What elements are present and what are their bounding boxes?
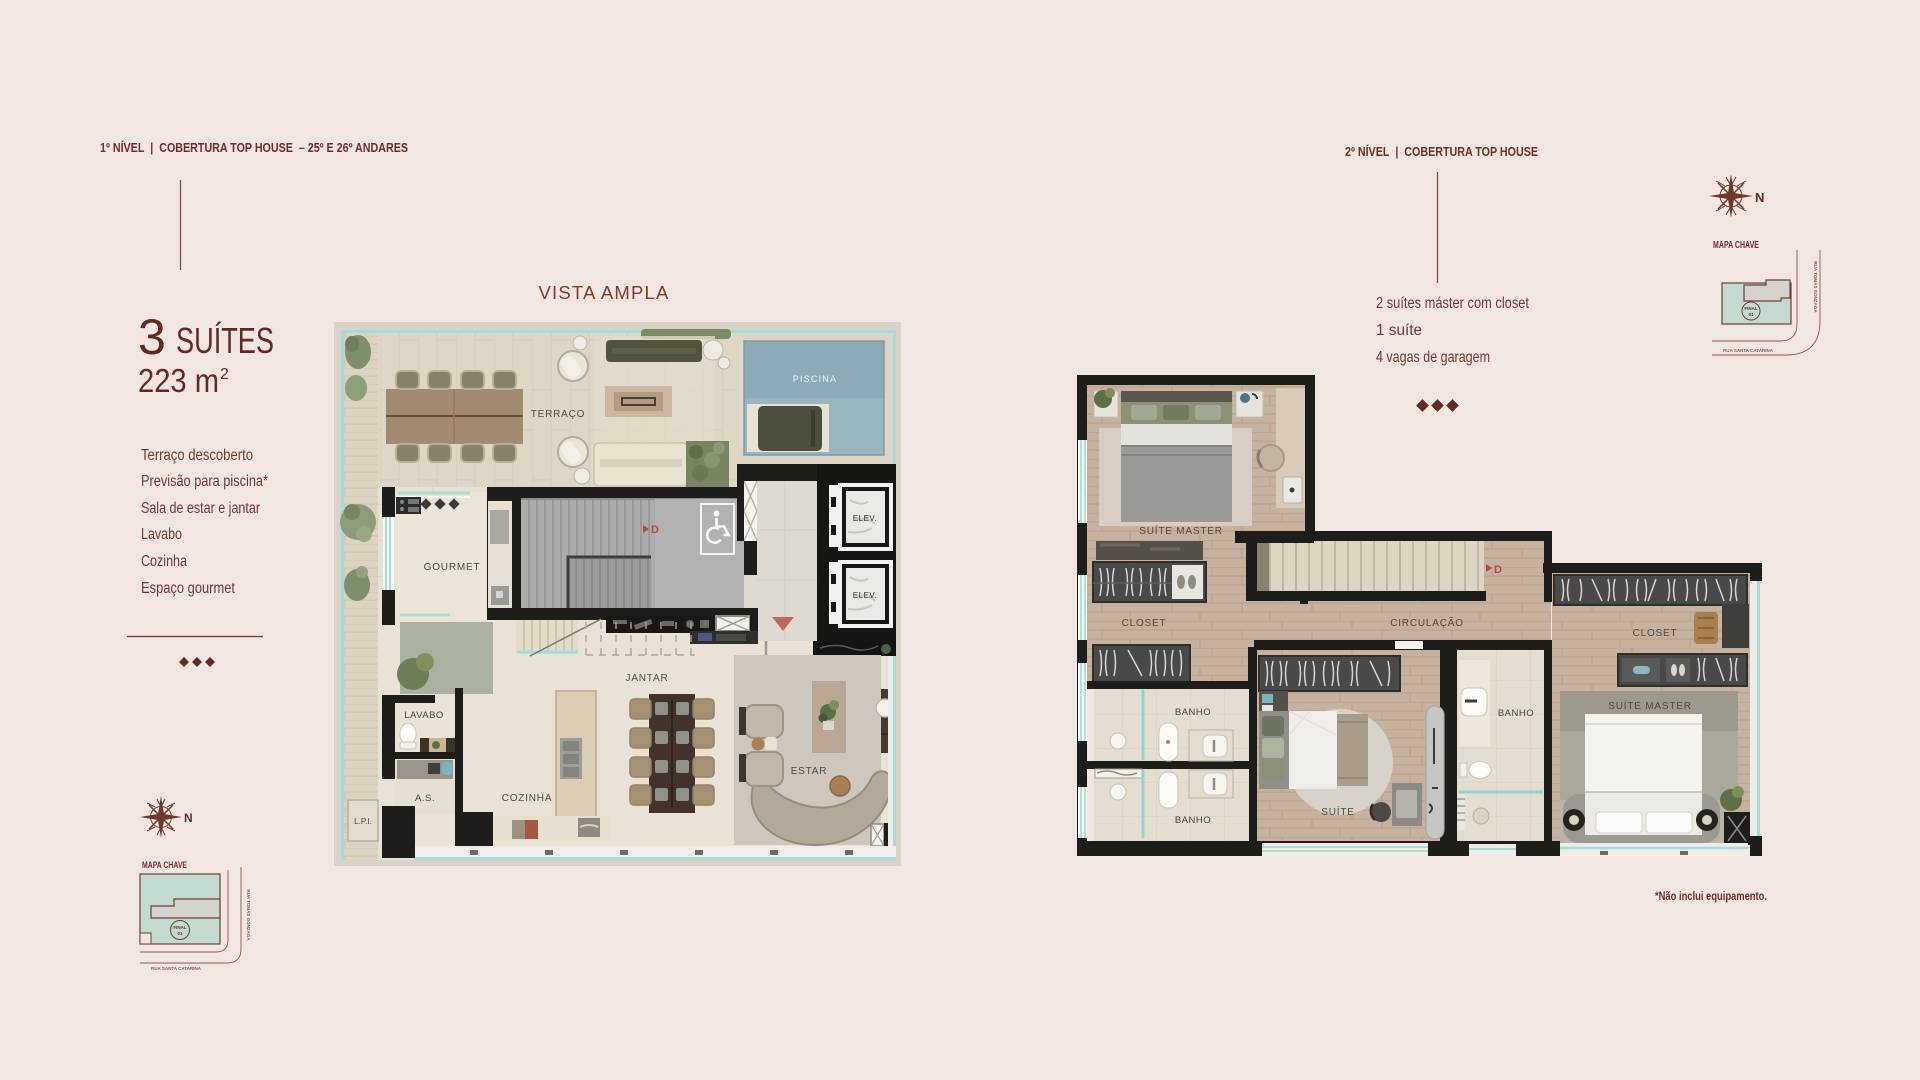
svg-text:SUÍTES: SUÍTES <box>176 320 274 361</box>
svg-text:ELEV.: ELEV. <box>853 514 877 523</box>
svg-text:1º NÍVEL | COBERTURA TOP HOU: 1º NÍVEL | COBERTURA TOP HOUSE – 25º E 2… <box>100 140 408 155</box>
svg-text:LAVABO: LAVABO <box>404 710 444 721</box>
svg-text:D: D <box>1494 564 1502 576</box>
svg-text:4 vagas de garagem: 4 vagas de garagem <box>1376 349 1490 366</box>
svg-text:2 suítes máster com closet: 2 suítes máster com closet <box>1376 295 1530 312</box>
svg-text:RUA TOMÁS GONZAGA: RUA TOMÁS GONZAGA <box>1813 261 1819 313</box>
svg-text:Espaço gourmet: Espaço gourmet <box>141 580 236 597</box>
svg-text:SUÍTE MASTER: SUÍTE MASTER <box>1139 524 1223 537</box>
svg-text:RUA TOMÁS GONZAGA: RUA TOMÁS GONZAGA <box>246 889 252 941</box>
svg-text:PISCINA: PISCINA <box>793 374 837 384</box>
svg-text:2º NÍVEL | COBERTURA TOP HOU: 2º NÍVEL | COBERTURA TOP HOUSE <box>1345 144 1538 159</box>
svg-text:BANHO: BANHO <box>1175 815 1211 826</box>
svg-text:RUA SANTA CATARINA: RUA SANTA CATARINA <box>1723 348 1774 353</box>
svg-text:CLOSET: CLOSET <box>1633 628 1678 639</box>
svg-text:1 suíte: 1 suíte <box>1376 322 1422 339</box>
svg-text:FINAL: FINAL <box>173 925 186 930</box>
svg-text:Previsão para piscina*: Previsão para piscina* <box>141 473 268 490</box>
svg-text:GOURMET: GOURMET <box>424 562 481 573</box>
svg-text:Lavabo: Lavabo <box>141 526 182 543</box>
svg-text:223 m: 223 m <box>138 362 219 399</box>
svg-text:BANHO: BANHO <box>1498 708 1534 719</box>
svg-text:MAPA CHAVE: MAPA CHAVE <box>142 860 187 871</box>
svg-text:N: N <box>184 811 193 825</box>
svg-text:Sala de estar e jantar: Sala de estar e jantar <box>141 500 260 517</box>
svg-text:L.P.I.: L.P.I. <box>354 817 372 826</box>
svg-text:FINAL: FINAL <box>1744 306 1757 311</box>
svg-text:01: 01 <box>177 931 183 936</box>
svg-text:D: D <box>651 524 659 536</box>
svg-text:VISTA AMPLA: VISTA AMPLA <box>538 282 669 303</box>
svg-text:ESTAR: ESTAR <box>791 766 828 777</box>
svg-text:JANTAR: JANTAR <box>626 673 669 684</box>
svg-text:RUA SANTA CATARINA: RUA SANTA CATARINA <box>151 966 202 971</box>
svg-text:SUÍTE MASTER: SUÍTE MASTER <box>1608 699 1692 712</box>
svg-text:BANHO: BANHO <box>1175 707 1211 718</box>
svg-text:Cozinha: Cozinha <box>141 553 187 570</box>
svg-text:CLOSET: CLOSET <box>1122 618 1167 629</box>
svg-text:3: 3 <box>138 309 166 365</box>
svg-text:01: 01 <box>1748 312 1754 317</box>
svg-text:CIRCULAÇÃO: CIRCULAÇÃO <box>1390 616 1464 629</box>
svg-text:SUÍTE: SUÍTE <box>1321 805 1354 818</box>
svg-text:COZINHA: COZINHA <box>502 793 553 804</box>
svg-text:ELEV.: ELEV. <box>853 591 877 600</box>
svg-text:A.S.: A.S. <box>415 793 435 804</box>
svg-text:2: 2 <box>220 366 229 383</box>
svg-text:Terraço descoberto: Terraço descoberto <box>141 447 253 464</box>
svg-text:*Não inclui equipamento.: *Não inclui equipamento. <box>1655 891 1767 903</box>
svg-text:N: N <box>1755 190 1764 205</box>
svg-text:TERRAÇO: TERRAÇO <box>531 409 586 420</box>
svg-text:MAPA CHAVE: MAPA CHAVE <box>1713 240 1759 251</box>
